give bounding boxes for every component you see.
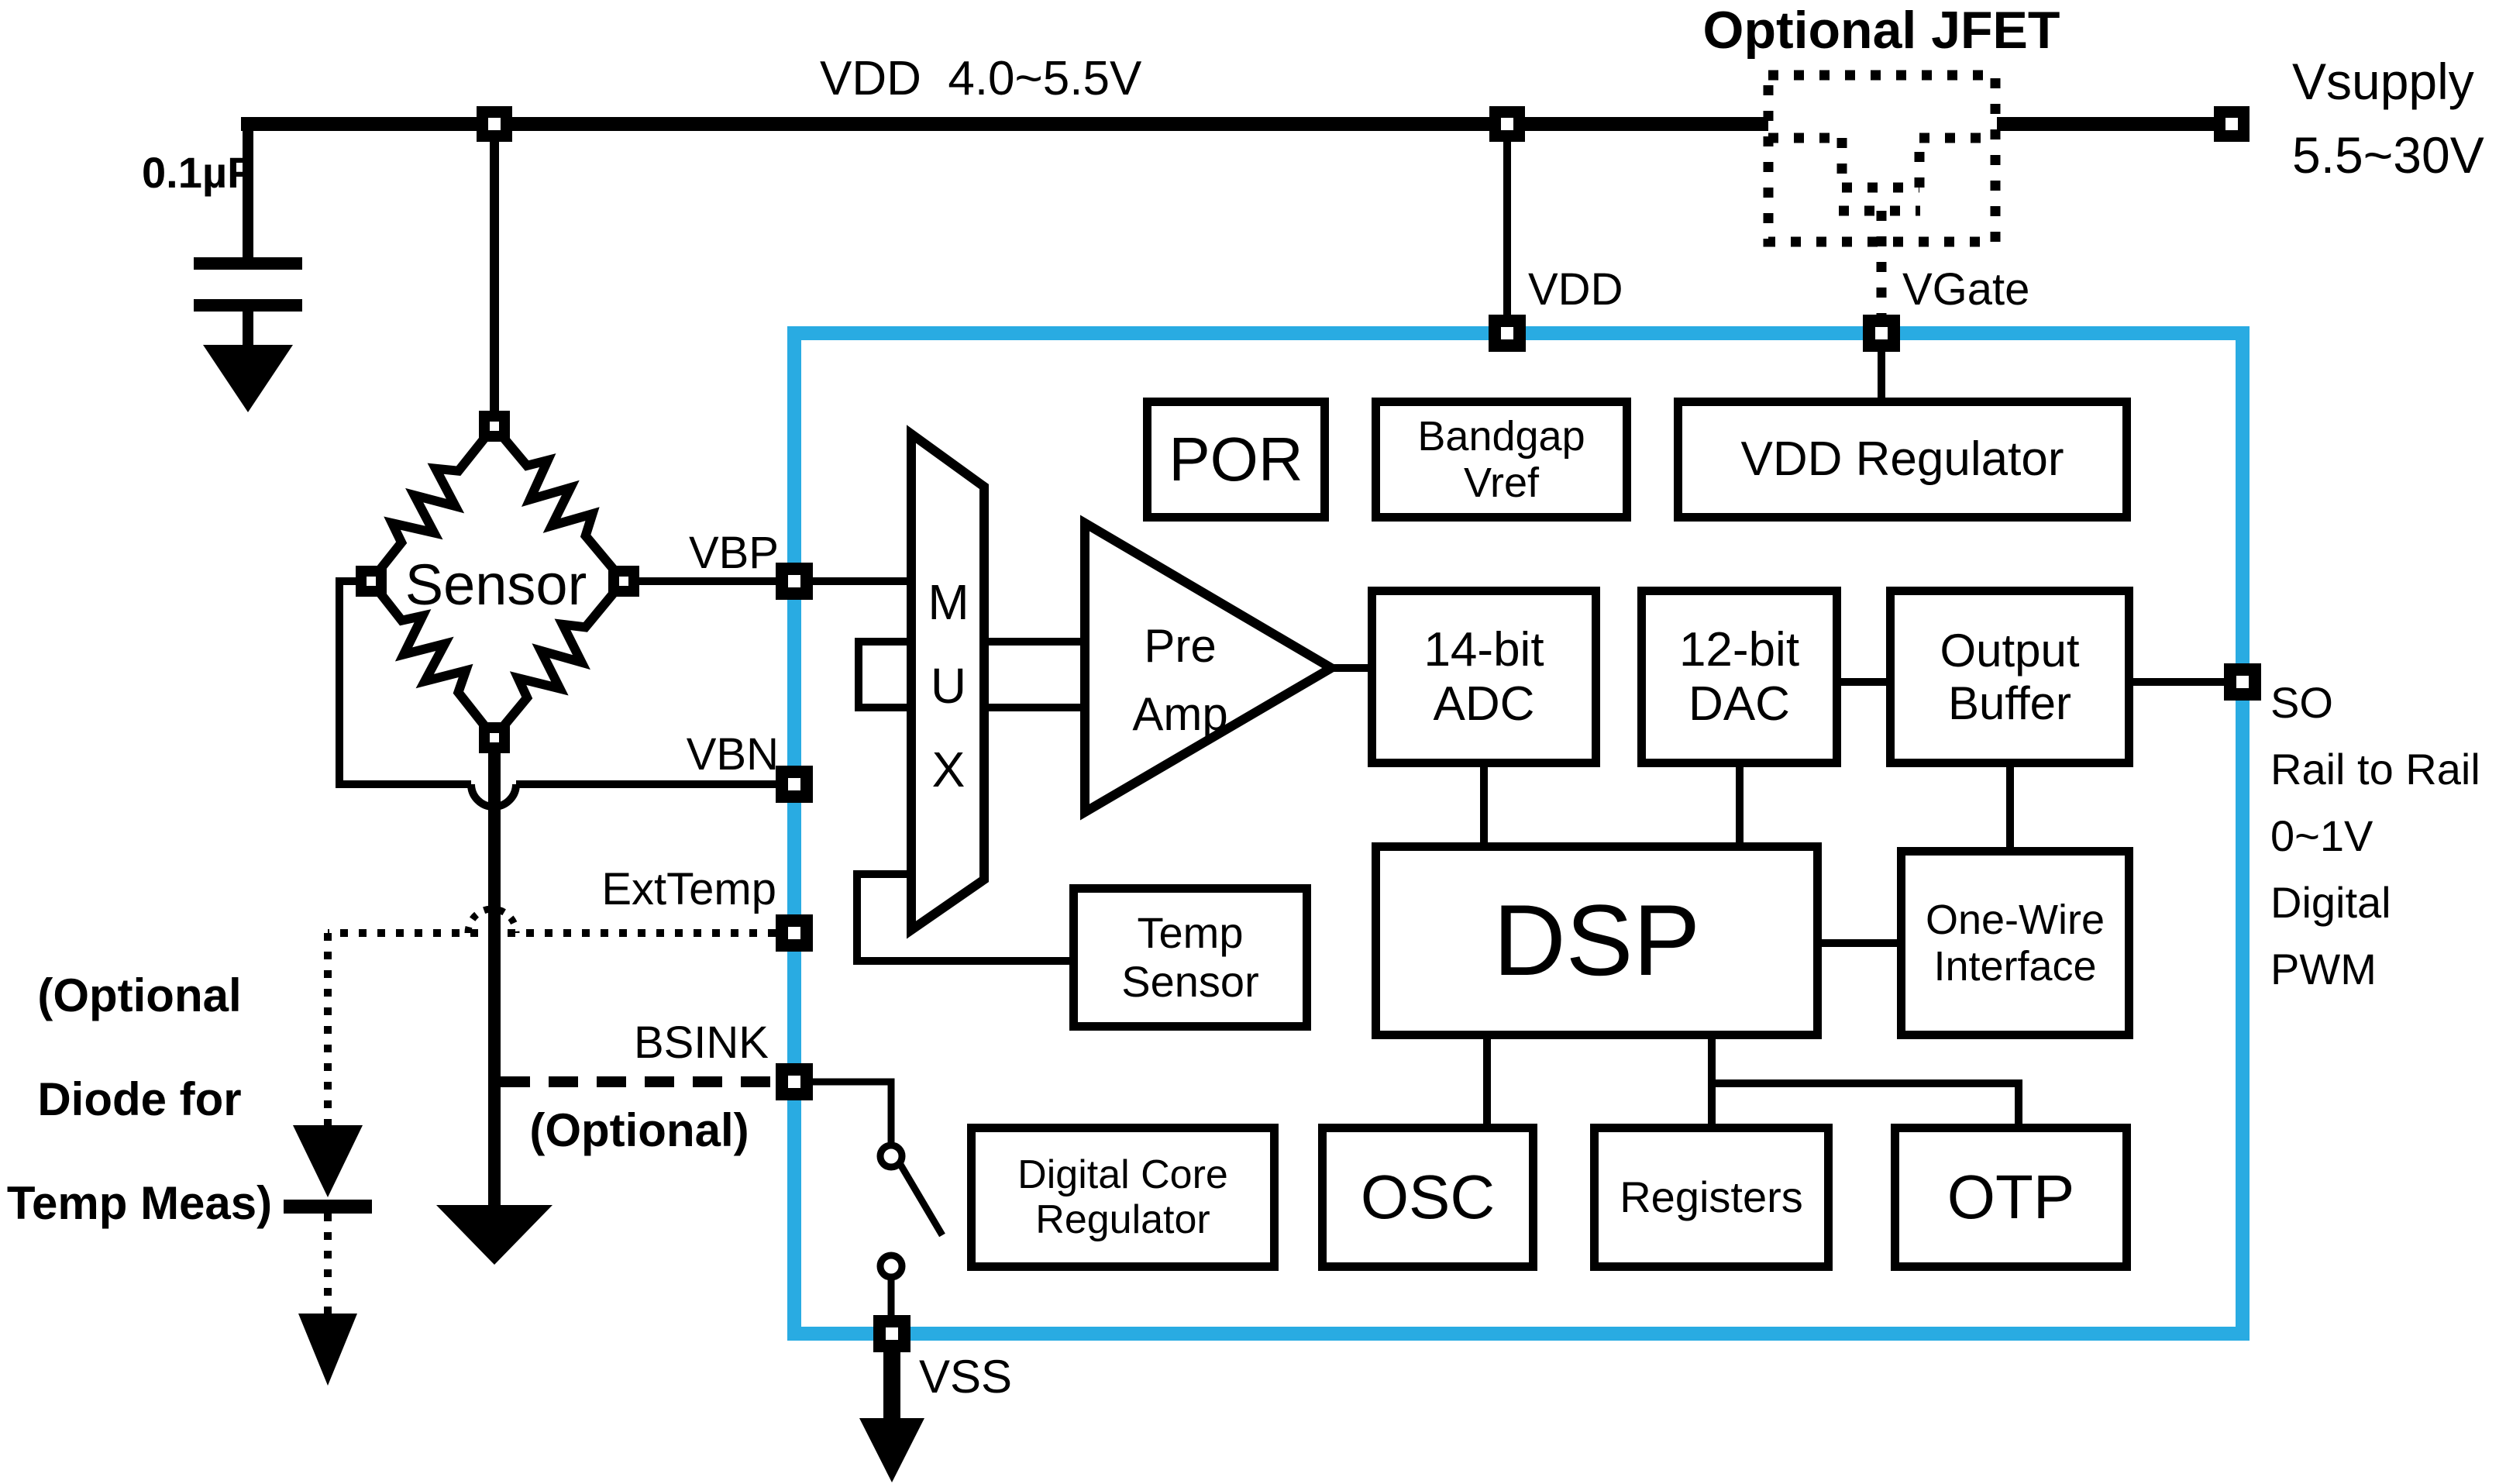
block-output-buffer: Output Buffer bbox=[1886, 587, 2133, 767]
block-dsp: DSP bbox=[1372, 842, 1822, 1039]
vss-pin-label: VSS bbox=[919, 1350, 1012, 1403]
so-line: SO bbox=[2270, 670, 2480, 736]
block-bandgap-vref: Bandgap Vref bbox=[1372, 398, 1631, 522]
ground-arrow-cap bbox=[203, 345, 293, 412]
block-dac-line2: DAC bbox=[1688, 677, 1790, 731]
vgate-pin-label: VGate bbox=[1902, 263, 2029, 315]
block-osc-label: OSC bbox=[1361, 1162, 1495, 1232]
diode-note-line3: Temp Meas) bbox=[5, 1152, 274, 1255]
block-temp-sensor: Temp Sensor bbox=[1069, 884, 1311, 1031]
block-dcr-line1: Digital Core bbox=[1017, 1152, 1228, 1197]
block-dac-line1: 12-bit bbox=[1679, 623, 1799, 677]
exttemp-pin-label: ExtTemp bbox=[590, 863, 776, 915]
preamp-line2: Amp bbox=[1091, 680, 1269, 749]
ground-arrow-vss bbox=[859, 1418, 924, 1482]
block-digital-core-regulator: Digital Core Regulator bbox=[967, 1124, 1279, 1271]
block-otp: OTP bbox=[1891, 1124, 2131, 1271]
block-one-wire-interface: One-Wire Interface bbox=[1897, 847, 2133, 1039]
preamp-label: Pre Amp bbox=[1091, 612, 1269, 749]
preamp-line1: Pre bbox=[1091, 612, 1269, 680]
ground-arrow-diode bbox=[298, 1314, 357, 1386]
vsupply-label: Vsupply 5.5~30V bbox=[2292, 45, 2484, 192]
jfet-title: Optional JFET bbox=[1649, 0, 2114, 60]
rail-voltage-label: VDD 4.0~5.5V bbox=[820, 51, 1141, 106]
block-adc: 14-bit ADC bbox=[1368, 587, 1600, 767]
vsupply-line2: 5.5~30V bbox=[2292, 119, 2484, 192]
diode-note-line1: (Optional bbox=[5, 944, 274, 1048]
pwm-line: PWM bbox=[2270, 936, 2480, 1003]
block-bandgap-line2: Vref bbox=[1464, 460, 1539, 506]
vdd-rail bbox=[241, 117, 2219, 131]
block-one-wire-line2: Interface bbox=[1933, 943, 2096, 990]
sensor-label: Sensor bbox=[380, 552, 612, 618]
bridge-excitation-wire bbox=[490, 131, 499, 429]
vbp-pin-label: VBP bbox=[674, 527, 779, 579]
rail-to-rail-line: Rail to Rail bbox=[2270, 736, 2480, 803]
ic-block-diagram: POR Bandgap Vref VDD Regulator 14-bit AD… bbox=[0, 0, 2506, 1484]
block-adc-line2: ADC bbox=[1434, 677, 1535, 731]
vdd-pin-label: VDD bbox=[1528, 263, 1623, 315]
block-output-buffer-line1: Output bbox=[1940, 625, 2079, 677]
block-por-label: POR bbox=[1169, 425, 1303, 494]
block-temp-sensor-line2: Sensor bbox=[1121, 958, 1258, 1007]
cap-value-label: 0.1µF bbox=[142, 147, 253, 198]
bsink-optional-note: (Optional) bbox=[511, 1104, 767, 1157]
bridge-ground-branch bbox=[436, 752, 552, 1265]
so-output-label: SO Rail to Rail 0~1V Digital PWM bbox=[2270, 670, 2480, 1003]
vsupply-line1: Vsupply bbox=[2292, 45, 2484, 119]
block-vdd-regulator-label: VDD Regulator bbox=[1741, 432, 2064, 486]
bsink-pin-label: BSINK bbox=[612, 1017, 769, 1069]
block-temp-sensor-line1: Temp bbox=[1138, 909, 1244, 958]
vbn-pin-label: VBN bbox=[674, 728, 779, 780]
mux-label: M U X bbox=[914, 511, 983, 860]
block-one-wire-line1: One-Wire bbox=[1926, 897, 2105, 943]
block-output-buffer-line2: Buffer bbox=[1948, 677, 2071, 729]
block-dcr-line2: Regulator bbox=[1035, 1197, 1210, 1242]
block-vdd-regulator: VDD Regulator bbox=[1674, 398, 2131, 522]
mux-letter-x: X bbox=[932, 741, 966, 798]
vss-ground bbox=[859, 1351, 924, 1482]
block-registers: Registers bbox=[1590, 1124, 1833, 1271]
mux-letter-u: U bbox=[931, 657, 966, 714]
bsink-switch bbox=[813, 1082, 942, 1317]
diode-note-line2: Diode for bbox=[5, 1048, 274, 1152]
block-dsp-label: DSP bbox=[1493, 884, 1700, 997]
block-adc-line1: 14-bit bbox=[1423, 623, 1544, 677]
block-dac: 12-bit DAC bbox=[1637, 587, 1841, 767]
block-por: POR bbox=[1143, 398, 1329, 522]
range-line: 0~1V bbox=[2270, 803, 2480, 869]
block-registers-label: Registers bbox=[1620, 1173, 1803, 1222]
ground-arrow-sensor bbox=[436, 1205, 552, 1265]
block-bandgap-line1: Bandgap bbox=[1417, 413, 1585, 460]
mux-letter-m: M bbox=[928, 573, 969, 631]
optional-diode-note: (Optional Diode for Temp Meas) bbox=[5, 944, 274, 1255]
block-otp-label: OTP bbox=[1947, 1162, 2074, 1232]
block-osc: OSC bbox=[1318, 1124, 1537, 1271]
digital-line: Digital bbox=[2270, 869, 2480, 936]
diode-symbol bbox=[293, 1125, 363, 1197]
